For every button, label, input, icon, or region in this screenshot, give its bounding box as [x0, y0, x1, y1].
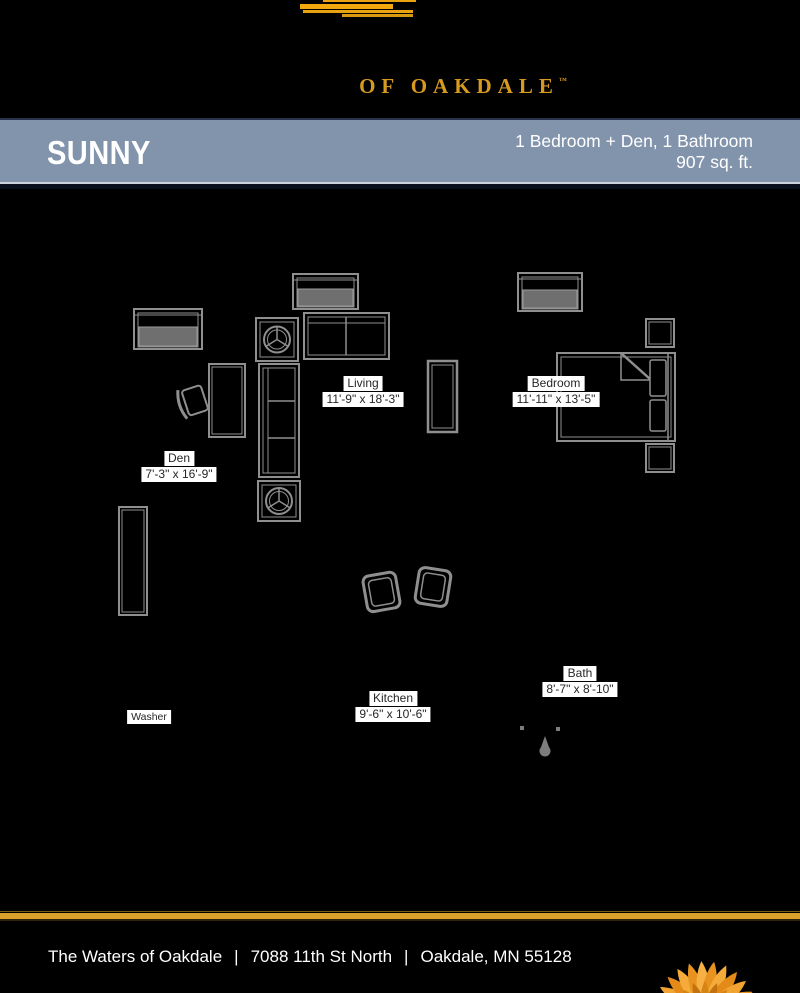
- floorplan-page: OF OAKDALE™ SUNNY 1 Bedroom + Den, 1 Bat…: [0, 0, 800, 993]
- room-name: Bedroom: [528, 376, 585, 391]
- console-sofa: [134, 309, 202, 349]
- room-dims: 11'-11" x 13'-5": [513, 392, 600, 407]
- dresser: [518, 273, 582, 311]
- couch: [304, 313, 389, 359]
- separator: |: [404, 947, 408, 967]
- flower-photo: [608, 921, 800, 993]
- desk-chair: [175, 383, 209, 420]
- street-address: 7088 11th St North: [251, 947, 392, 967]
- separator: |: [234, 947, 238, 967]
- community-name: The Waters of Oakdale: [48, 947, 222, 967]
- room-label-den: Den 7'-3" x 16'-9": [141, 451, 216, 482]
- end-table-lamp-icon: [258, 481, 300, 521]
- desk: [209, 364, 245, 437]
- nightstand: [646, 319, 674, 347]
- footer-address: The Waters of Oakdale | 7088 11th St Nor…: [48, 947, 572, 967]
- sectional-sofa: [259, 364, 299, 477]
- sink-faucet-icon: [520, 726, 560, 757]
- nightstand: [646, 444, 674, 472]
- room-name: Living: [343, 376, 382, 391]
- kitchen-island: [428, 361, 457, 432]
- loveseat: [293, 274, 358, 309]
- room-dims: 11'-9" x 18'-3": [323, 392, 404, 407]
- room-name: Bath: [564, 666, 597, 681]
- closet: [119, 507, 147, 615]
- room-label-kitchen: Kitchen 9'-6" x 10'-6": [355, 691, 430, 722]
- city-state-zip: Oakdale, MN 55128: [420, 947, 571, 967]
- room-label-bath: Bath 8'-7" x 8'-10": [542, 666, 617, 697]
- appliance-name: Washer: [127, 710, 171, 724]
- room-label-bedroom: Bedroom 11'-11" x 13'-5": [513, 376, 600, 407]
- floor-plan-drawing: [0, 0, 800, 993]
- room-label-living: Living 11'-9" x 18'-3": [323, 376, 404, 407]
- room-name: Kitchen: [369, 691, 417, 706]
- end-table-lamp-icon: [256, 318, 298, 361]
- room-name: Den: [164, 451, 194, 466]
- bar-stool: [414, 567, 451, 608]
- bar-stool: [362, 571, 401, 612]
- room-dims: 9'-6" x 10'-6": [355, 707, 430, 722]
- washer-label: Washer: [127, 710, 171, 724]
- room-dims: 8'-7" x 8'-10": [542, 682, 617, 697]
- footer-gold-rule: [0, 911, 800, 912]
- room-dims: 7'-3" x 16'-9": [141, 467, 216, 482]
